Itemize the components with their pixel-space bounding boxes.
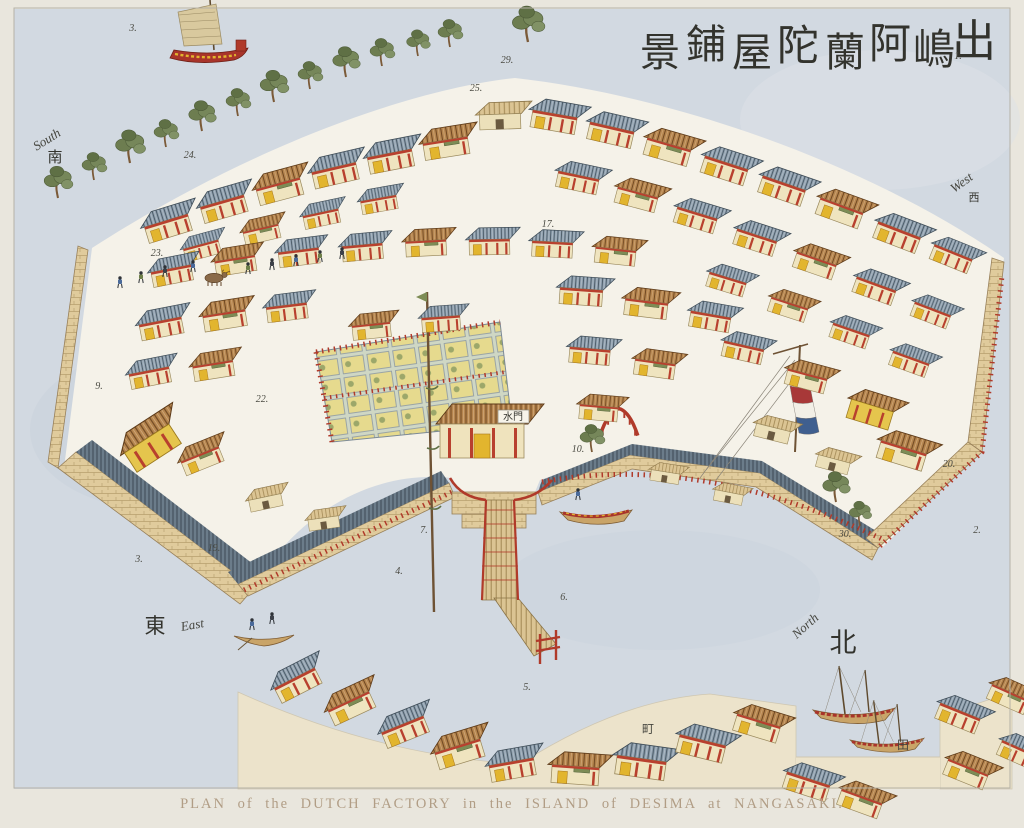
title-character: 嶋 (913, 28, 955, 74)
title-character: 阿 (869, 22, 911, 68)
plot-number: 2. (973, 525, 981, 536)
plot-number: 29. (501, 55, 514, 66)
title-character: 鋪 (686, 22, 726, 67)
title-character: 蘭 (825, 30, 865, 75)
plot-number: 9. (95, 381, 103, 392)
kanji-mark: 町 (642, 722, 654, 736)
plot-number: 4. (395, 566, 403, 577)
compass-kanji: 東 (145, 614, 166, 638)
title-character: 屋 (732, 30, 772, 75)
plot-number: 3. (134, 554, 143, 565)
plot-number: 1. (954, 51, 962, 62)
plot-number: 7. (420, 525, 428, 536)
plot-number: 20. (943, 459, 956, 470)
compass-kanji: 南 (47, 149, 62, 166)
plot-number: 10. (572, 444, 585, 455)
compass-kanji: 北 (830, 628, 857, 658)
plot-number: 30. (838, 529, 852, 540)
title-character: 景 (640, 30, 680, 75)
plot-number: 23. (151, 248, 164, 259)
caption: PLAN of the DUTCH FACTORY in the ISLAND … (0, 796, 1024, 813)
plot-number: 3. (128, 23, 137, 34)
plot-number: 24. (184, 150, 197, 161)
plot-number: 6. (560, 592, 568, 603)
gate-sign-text: 水門 (503, 411, 523, 423)
kanji-mark: 田 (897, 738, 909, 752)
plot-number: 5. (523, 682, 531, 693)
map-plate: 景鋪屋陀蘭阿嶋出 South南West西East東North北 3.29.25.… (0, 0, 1024, 828)
plot-number: 19. (208, 543, 221, 554)
title-character: 陀 (777, 24, 819, 70)
engraving-sheet: 景鋪屋陀蘭阿嶋出 South南West西East東North北 3.29.25.… (0, 0, 1024, 828)
plot-number: 25. (470, 83, 483, 94)
compass-kanji: 西 (969, 192, 980, 204)
plot-number: 22. (256, 394, 269, 405)
plot-number: 17. (542, 219, 555, 230)
building-signs: 水門 (503, 411, 523, 423)
